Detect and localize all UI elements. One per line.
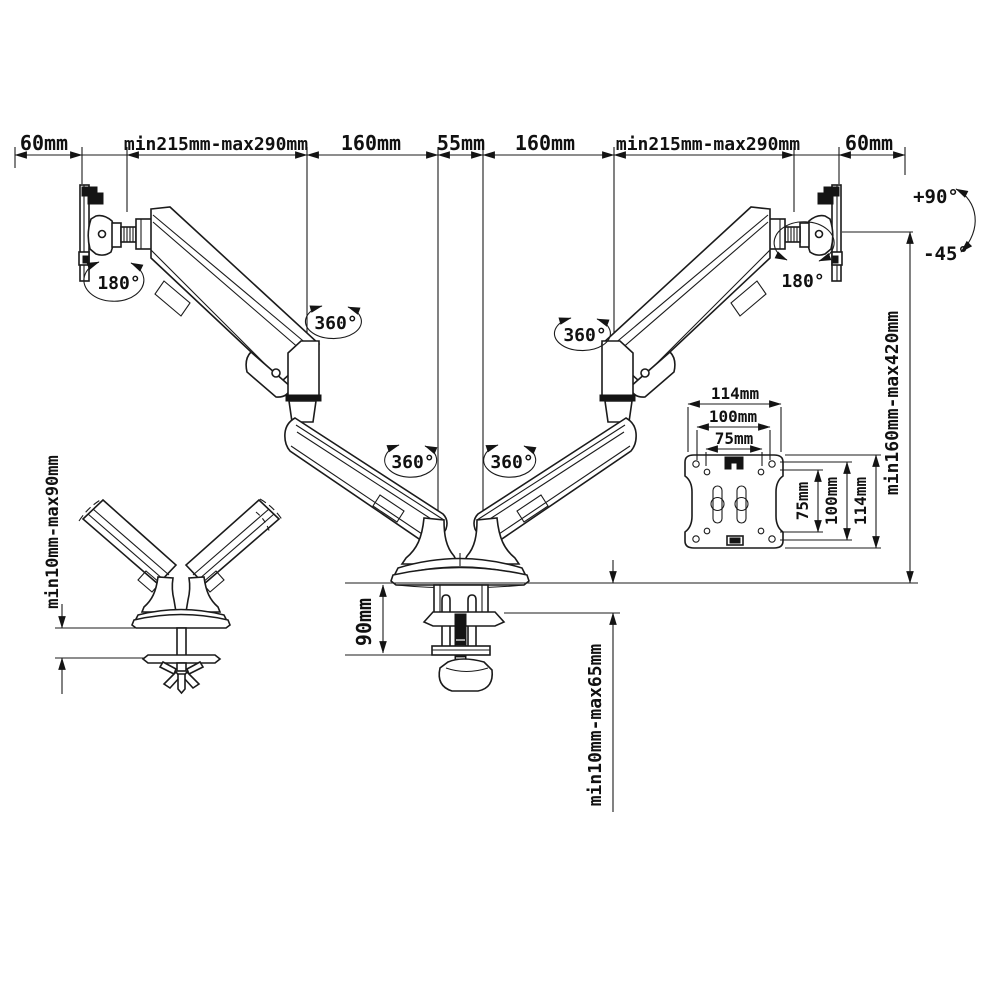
dim-top-60mm-left: 60mm [20, 131, 68, 155]
dim-top-60mm-right: 60mm [845, 131, 893, 155]
left-arm-assembly [79, 185, 458, 564]
clamp-detail-view: min10mm-max90mm [43, 455, 283, 694]
base-height-label: 90mm [352, 598, 376, 646]
vesa-width-100-label: 100mm [709, 407, 758, 426]
vesa-height-75-label: 75mm [793, 481, 812, 520]
center-base-and-clamp [391, 553, 529, 691]
right-arm-assembly [463, 185, 842, 564]
dim-top-55mm: 55mm [437, 131, 485, 155]
height-range-label: min160mm-max420mm [882, 311, 903, 495]
desk-clamp-dimensions: 90mm min10mm-max65mm [345, 560, 918, 812]
detail-clamp-range-label: min10mm-max90mm [43, 455, 63, 609]
height-range-dimension: min160mm-max420mm [842, 232, 913, 583]
rotate-angle-lower-right-label: 360° [490, 452, 533, 473]
dim-top-reach-right: min215mm-max290mm [616, 134, 800, 155]
clamp-range-label: min10mm-max65mm [585, 644, 606, 807]
rotate-angle-lower-left-label: 360° [391, 452, 434, 473]
vesa-plate-detail: 114mm 100mm 75mm 75mm 100mm 114mm [685, 384, 881, 548]
swivel-angle-right-label: 180° [781, 271, 824, 292]
vesa-width-75-label: 75mm [715, 429, 754, 448]
vesa-width-114-label: 114mm [711, 384, 760, 403]
dim-top-reach-left: min215mm-max290mm [124, 134, 308, 155]
vesa-height-114-label: 114mm [851, 477, 870, 526]
swivel-angle-left-label: 180° [97, 273, 140, 294]
monitor-arm-dimension-diagram: 60mm min215mm-max290mm 160mm 55mm 160mm … [0, 0, 1000, 1000]
dim-top-160mm-right: 160mm [515, 131, 575, 155]
rotate-angle-upper-left-label: 360° [314, 313, 357, 334]
diagram-canvas: 60mm min215mm-max290mm 160mm 55mm 160mm … [0, 0, 1000, 1000]
tilt-up-label: +90° [913, 186, 959, 208]
vesa-height-100-label: 100mm [822, 477, 841, 526]
dim-top-160mm-left: 160mm [341, 131, 401, 155]
rotate-angle-upper-right-label: 360° [563, 325, 606, 346]
tilt-down-label: -45° [923, 243, 969, 265]
